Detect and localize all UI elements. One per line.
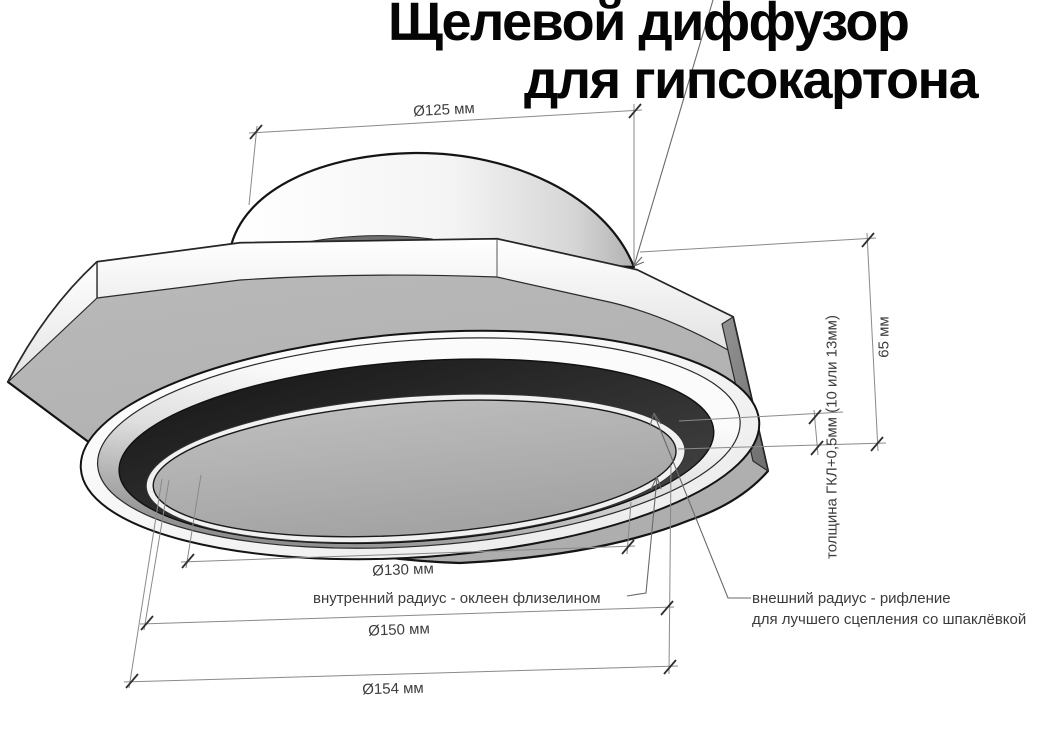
dim-label-height: 65 мм	[876, 316, 893, 357]
dim-label-drywall-thickness: толщина ГКЛ+0,5мм (10 или 13мм)	[824, 315, 841, 559]
page-title-line1: Щелевой диффузор	[388, 0, 908, 50]
diffuser-model	[8, 153, 768, 580]
annotation-outer-radius: внешний радиус - рифление для лучшего сц…	[752, 588, 1026, 630]
annotation-outer-radius-line2: для лучшего сцепления со шпаклёвкой	[752, 609, 1026, 630]
dim-label-collar-diameter: Ø125 мм	[413, 100, 475, 120]
dim-label-inner-diameter: Ø130 мм	[372, 560, 434, 579]
dim-label-overall-diameter: Ø154 мм	[362, 680, 424, 699]
annotation-outer-radius-line1: внешний радиус - рифление	[752, 588, 1026, 609]
technical-drawing-page: Щелевой диффузор для гипсокартона Ø125 м…	[0, 0, 1040, 729]
annotation-inner-radius: внутренний радиус - оклеен флизелином	[313, 588, 601, 609]
page-title-line2: для гипсокартона	[524, 52, 977, 108]
dim-label-outer-diameter: Ø150 мм	[368, 620, 430, 639]
